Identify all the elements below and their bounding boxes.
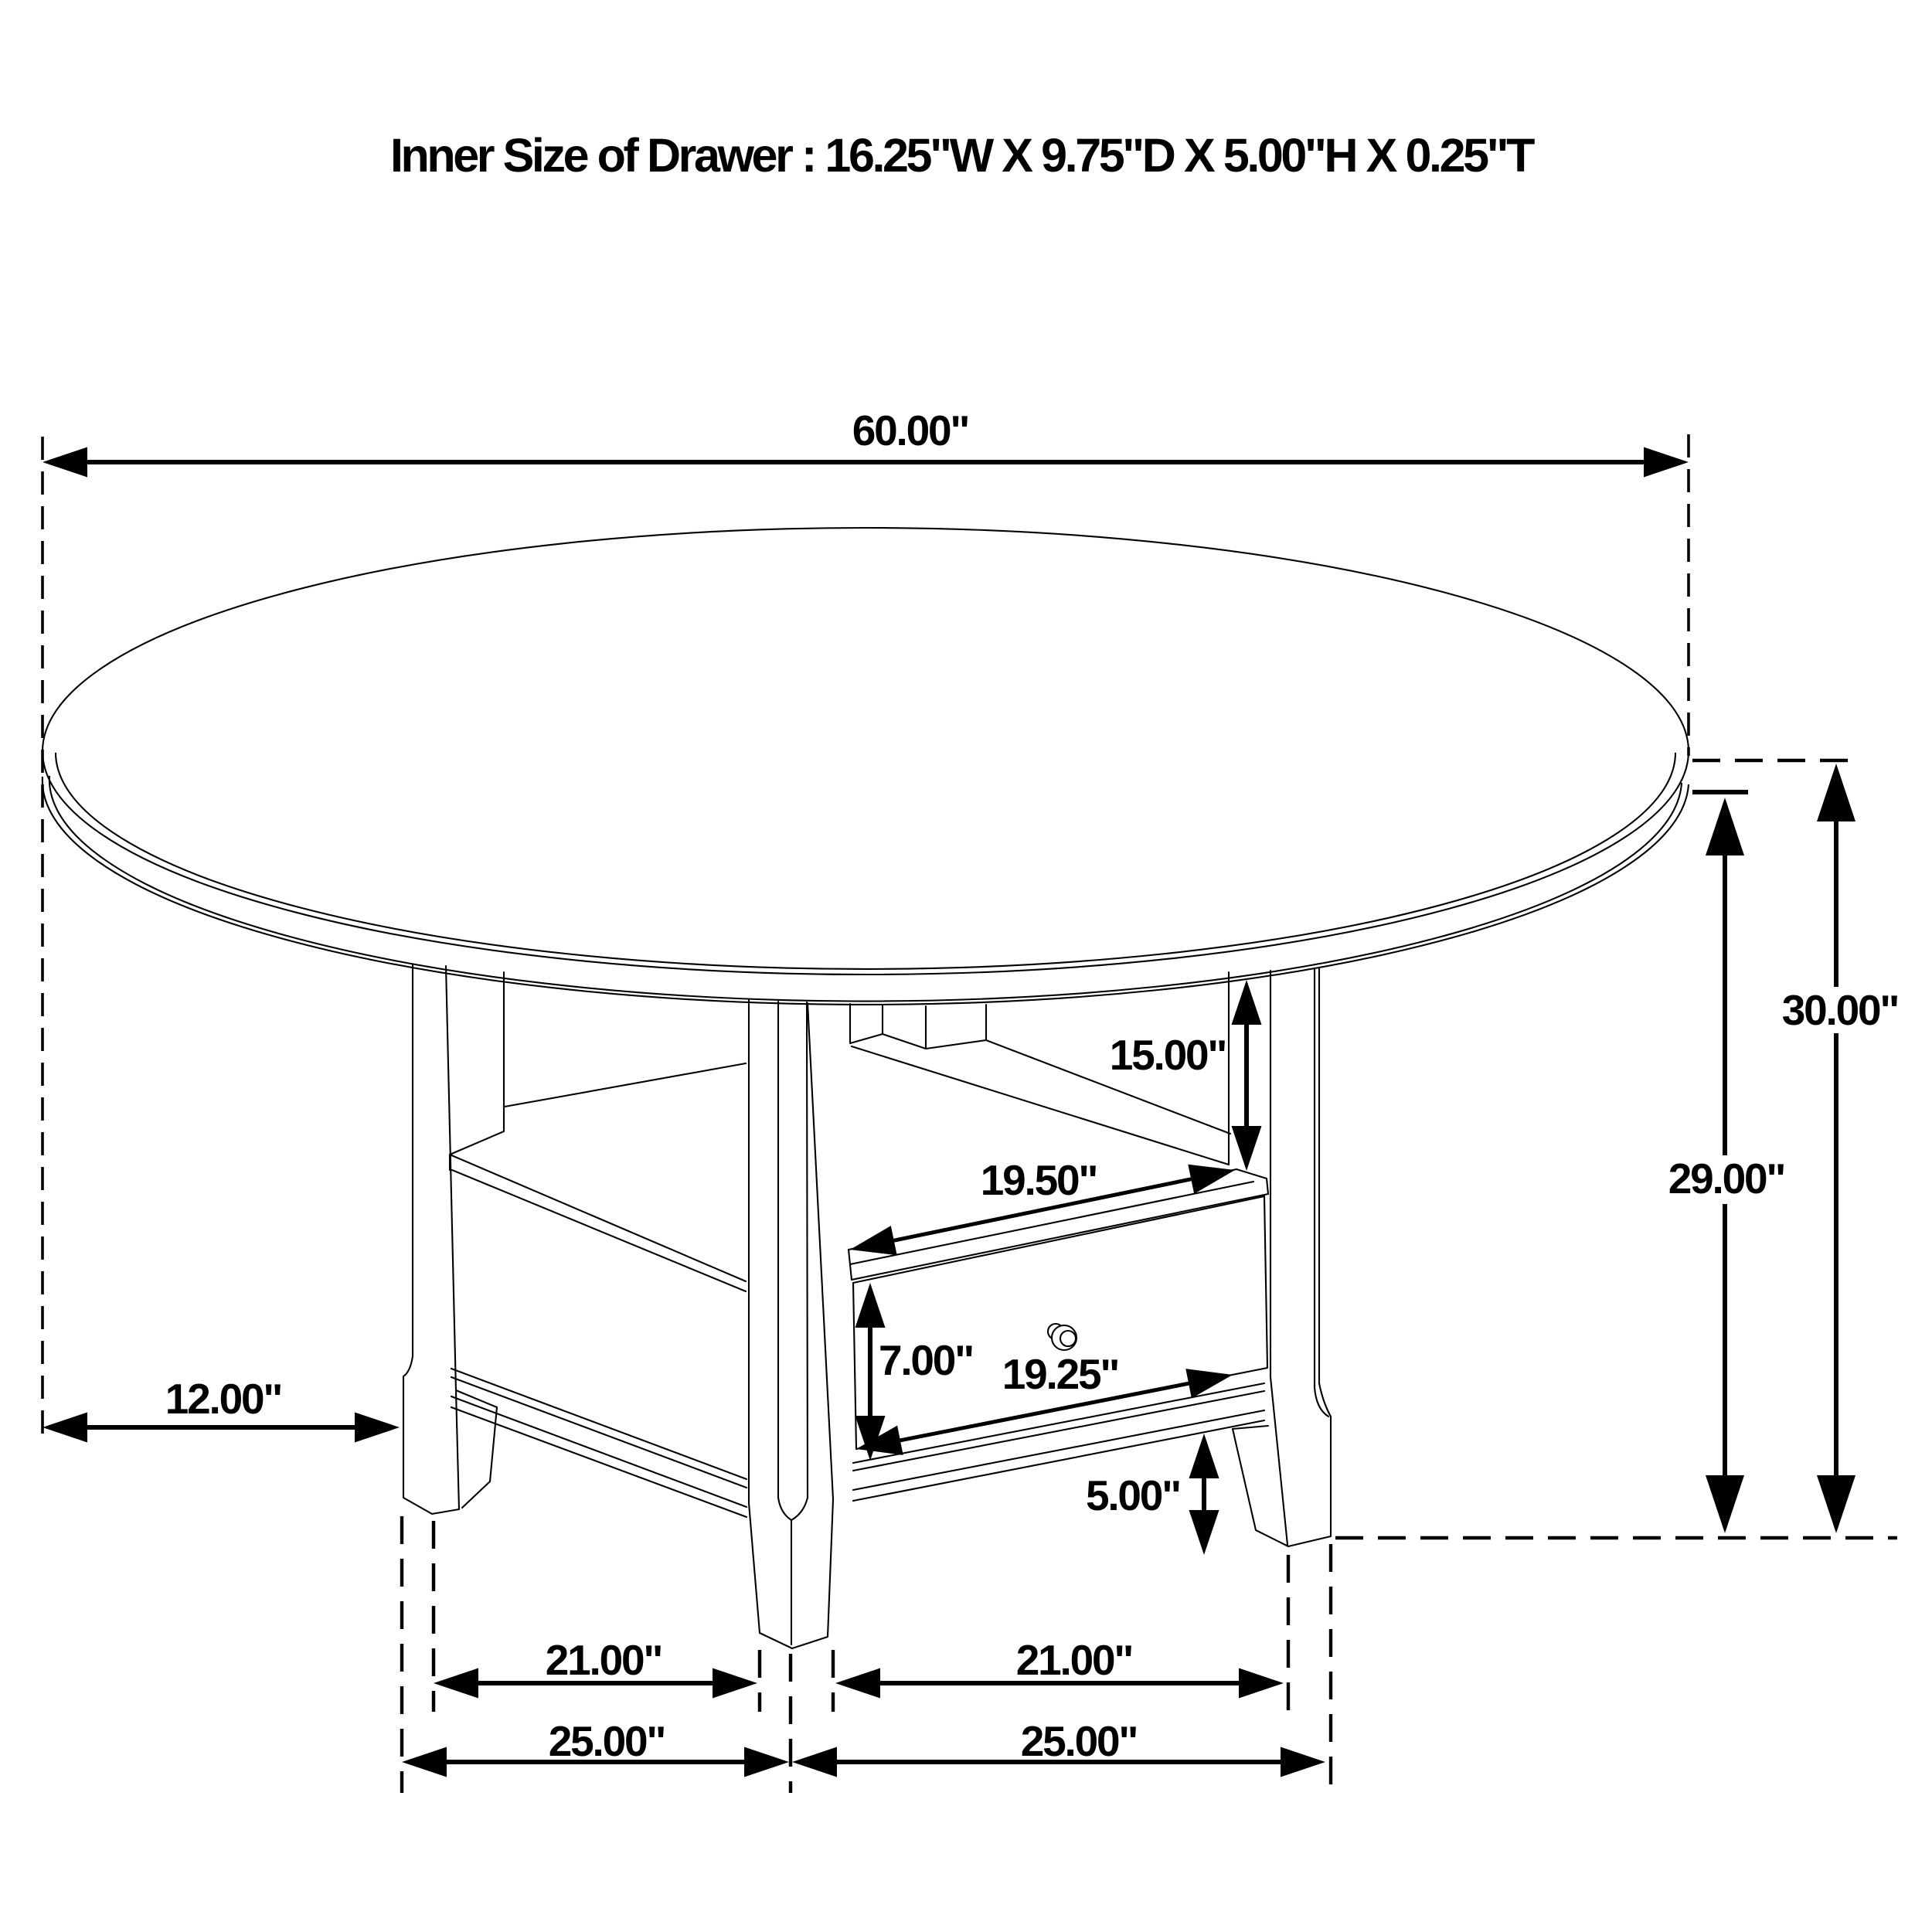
svg-text:19.25": 19.25" bbox=[1002, 1350, 1119, 1398]
svg-text:21.00": 21.00" bbox=[1016, 1636, 1133, 1684]
svg-text:25.00": 25.00" bbox=[549, 1717, 665, 1765]
svg-text:25.00": 25.00" bbox=[1021, 1717, 1138, 1765]
svg-text:Inner Size of Drawer : 16.25"W: Inner Size of Drawer : 16.25"W X 9.75"D … bbox=[390, 129, 1535, 182]
svg-text:12.00": 12.00" bbox=[165, 1375, 282, 1423]
svg-text:21.00": 21.00" bbox=[546, 1636, 662, 1684]
svg-text:60.00": 60.00" bbox=[852, 406, 969, 454]
svg-text:19.50": 19.50" bbox=[981, 1156, 1097, 1204]
svg-text:5.00": 5.00" bbox=[1086, 1471, 1180, 1519]
svg-text:30.00": 30.00" bbox=[1782, 986, 1899, 1034]
svg-text:15.00": 15.00" bbox=[1110, 1031, 1226, 1079]
svg-text:7.00": 7.00" bbox=[879, 1336, 973, 1384]
svg-text:29.00": 29.00" bbox=[1668, 1155, 1785, 1202]
